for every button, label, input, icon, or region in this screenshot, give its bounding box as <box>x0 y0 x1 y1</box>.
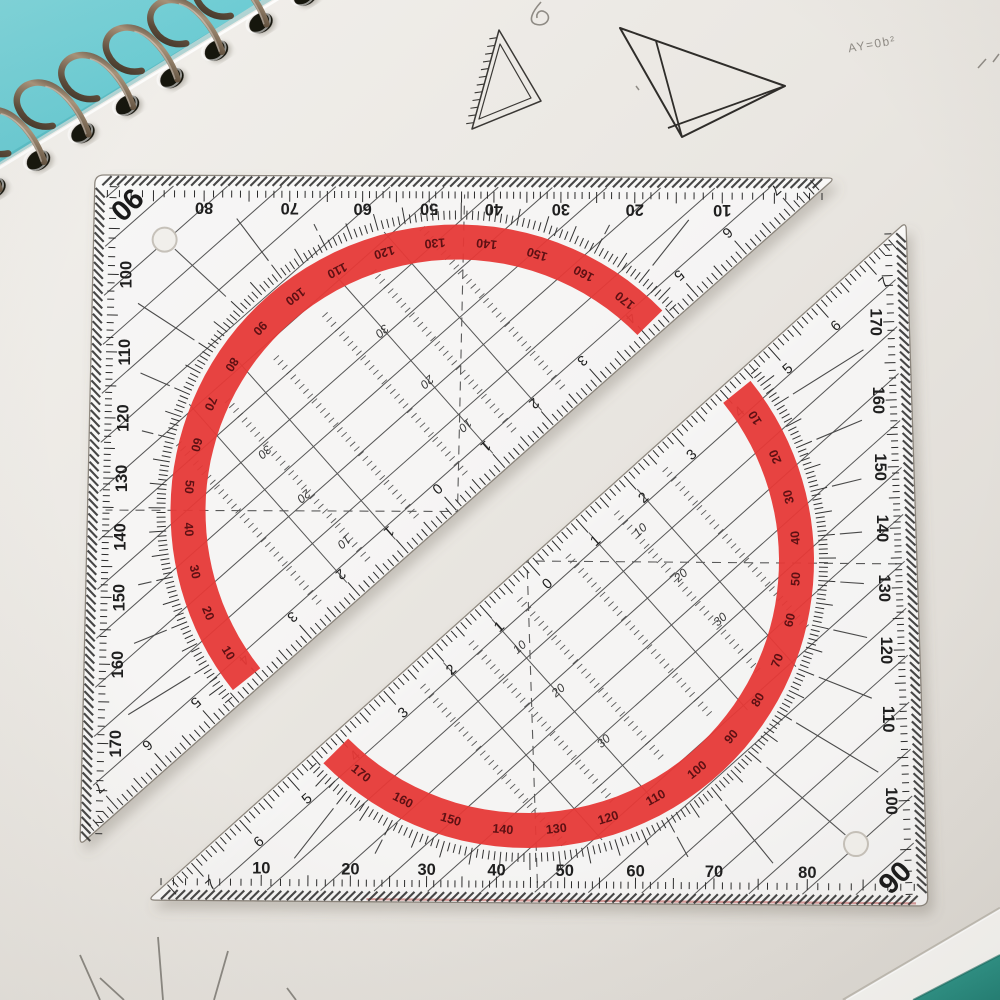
svg-text:140: 140 <box>873 515 891 543</box>
svg-text:10: 10 <box>713 201 731 219</box>
svg-text:30: 30 <box>417 861 435 879</box>
svg-text:60: 60 <box>626 863 644 881</box>
alignment-hole <box>844 832 868 856</box>
svg-text:100: 100 <box>118 261 136 289</box>
svg-text:10: 10 <box>252 860 270 878</box>
svg-text:50: 50 <box>788 572 803 587</box>
svg-text:50: 50 <box>182 479 197 494</box>
svg-text:130: 130 <box>424 235 446 251</box>
svg-text:160: 160 <box>869 387 887 415</box>
svg-text:140: 140 <box>476 236 498 252</box>
svg-text:170: 170 <box>866 308 884 336</box>
svg-text:70: 70 <box>705 863 723 881</box>
svg-text:150: 150 <box>871 453 889 481</box>
svg-text:170: 170 <box>107 730 125 758</box>
svg-text:20: 20 <box>626 200 644 218</box>
svg-text:130: 130 <box>113 465 131 493</box>
svg-text:160: 160 <box>109 651 127 679</box>
svg-text:40: 40 <box>487 861 505 879</box>
svg-text:40: 40 <box>181 522 196 537</box>
svg-text:110: 110 <box>116 339 134 366</box>
svg-text:40: 40 <box>788 530 803 545</box>
svg-text:120: 120 <box>114 404 132 432</box>
svg-text:80: 80 <box>798 864 816 882</box>
svg-text:120: 120 <box>877 637 895 665</box>
svg-text:60: 60 <box>353 199 371 217</box>
photo-geometry-set-squares: AY=0b² 765432101234567102030405060708010… <box>0 0 1000 1000</box>
svg-text:130: 130 <box>545 821 567 837</box>
svg-text:40: 40 <box>485 200 503 218</box>
svg-text:130: 130 <box>875 575 893 603</box>
svg-text:140: 140 <box>112 523 130 551</box>
scene-canvas: AY=0b² 765432101234567102030405060708010… <box>0 0 1000 1000</box>
svg-text:50: 50 <box>420 200 438 218</box>
svg-text:80: 80 <box>195 199 213 217</box>
svg-text:110: 110 <box>879 706 897 733</box>
svg-text:150: 150 <box>110 584 128 612</box>
svg-text:100: 100 <box>882 787 900 815</box>
svg-text:70: 70 <box>281 199 299 217</box>
svg-text:50: 50 <box>556 862 574 880</box>
alignment-hole <box>153 228 177 252</box>
svg-text:30: 30 <box>552 200 570 218</box>
svg-text:140: 140 <box>492 821 514 837</box>
svg-text:20: 20 <box>341 860 359 878</box>
